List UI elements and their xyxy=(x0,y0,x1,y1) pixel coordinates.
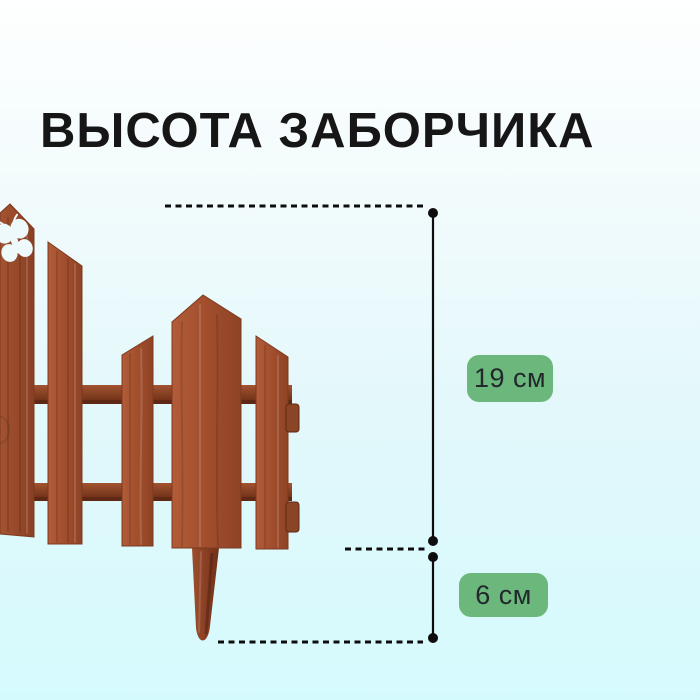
dimension-dot xyxy=(428,552,438,562)
stake-height-badge: 6 см xyxy=(459,573,548,617)
fence-stake xyxy=(192,548,219,641)
fence-height-label: 19 см xyxy=(474,363,546,394)
stake-height-label: 6 см xyxy=(475,580,532,611)
dimension-dot xyxy=(428,536,438,546)
dimension-dot xyxy=(428,633,438,643)
fence-height-badge: 19 см xyxy=(467,355,553,402)
product-infographic: ВЫСОТА ЗАБОРЧИКА xyxy=(0,0,700,700)
dimension-dot xyxy=(428,208,438,218)
fence-illustration xyxy=(0,0,700,700)
